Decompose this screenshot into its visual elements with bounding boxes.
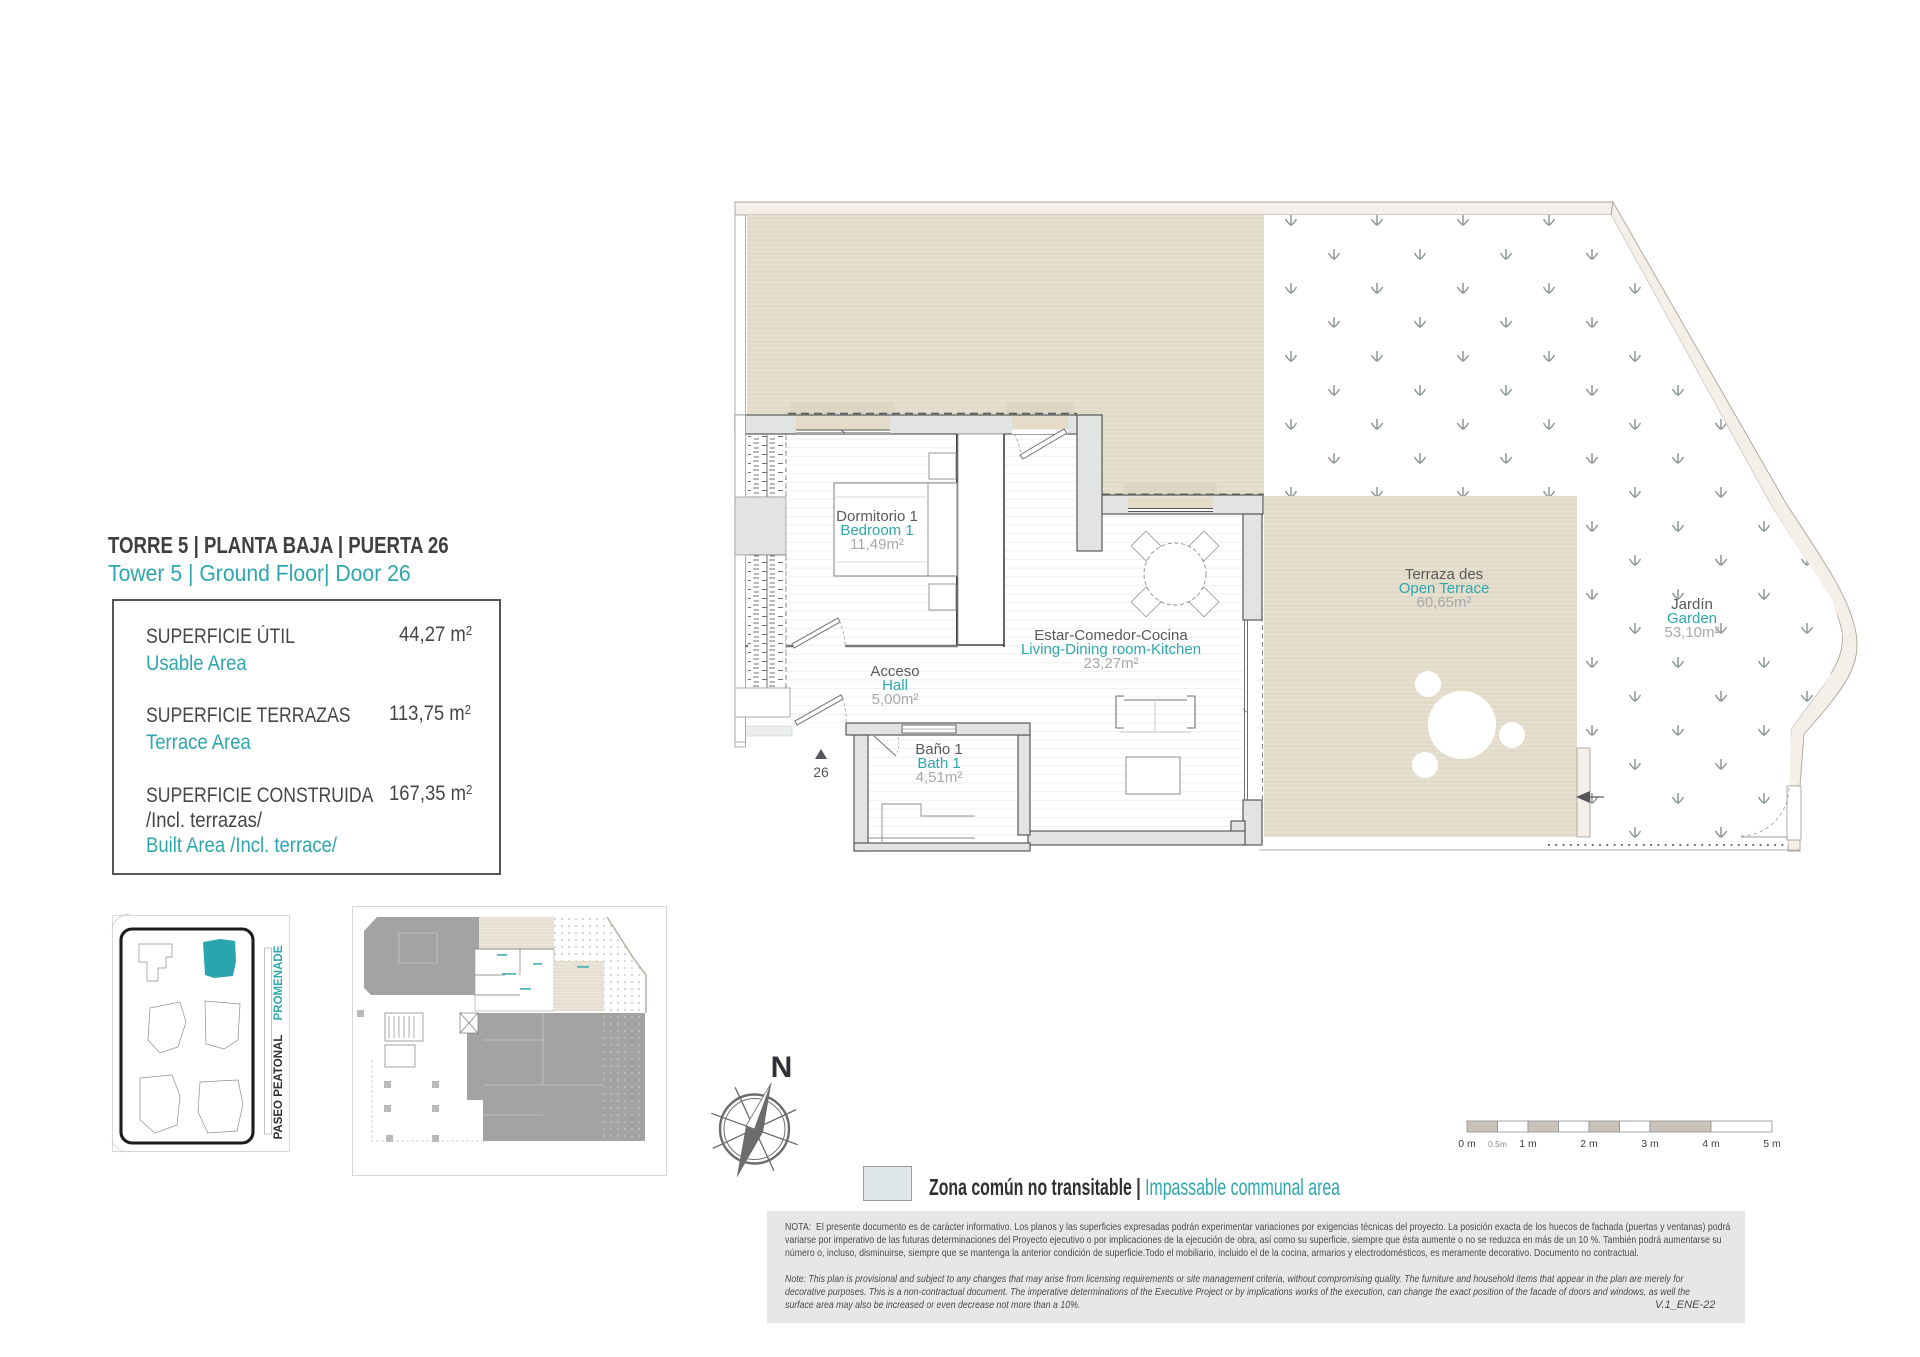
svg-text:1 m: 1 m xyxy=(1519,1138,1537,1150)
svg-text:2 m: 2 m xyxy=(1580,1138,1598,1150)
svg-text:60,65m²: 60,65m² xyxy=(1416,594,1471,611)
svg-text:PROMENADE: PROMENADE xyxy=(273,945,285,1020)
svg-text:11,49m²: 11,49m² xyxy=(850,536,904,553)
svg-text:N: N xyxy=(771,1051,793,1084)
svg-text:5,00m²: 5,00m² xyxy=(872,691,919,708)
svg-text:53,10m²: 53,10m² xyxy=(1664,624,1719,641)
svg-text:5 m: 5 m xyxy=(1763,1138,1781,1150)
svg-text:26: 26 xyxy=(813,764,829,780)
svg-text:0.5m: 0.5m xyxy=(1488,1139,1507,1149)
svg-text:PASEO PEATONAL: PASEO PEATONAL xyxy=(273,1035,285,1140)
svg-text:4,51m²: 4,51m² xyxy=(916,769,963,786)
svg-text:4 m: 4 m xyxy=(1702,1138,1720,1150)
svg-text:23,27m²: 23,27m² xyxy=(1083,655,1138,672)
svg-text:0 m: 0 m xyxy=(1458,1138,1476,1150)
svg-text:3 m: 3 m xyxy=(1641,1138,1659,1150)
